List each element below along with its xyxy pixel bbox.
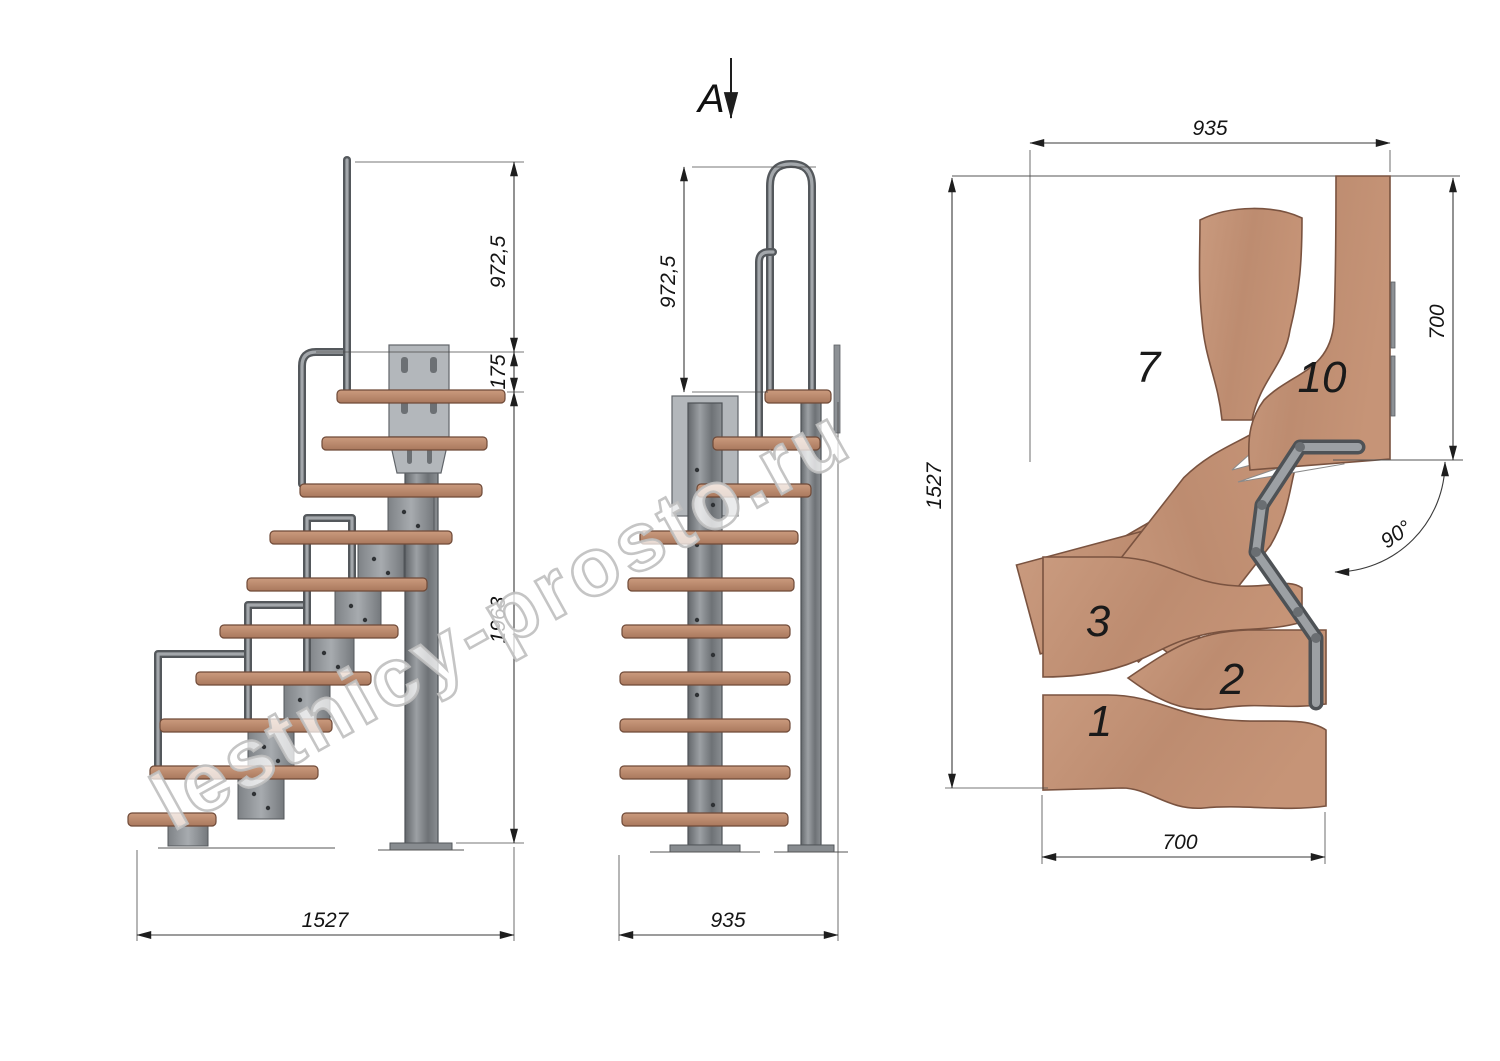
dim-plan-width: 935 xyxy=(1192,117,1227,140)
technical-drawing-staircase: 972,5 175 1963 1527 A xyxy=(0,0,1500,1061)
section-label: A xyxy=(696,77,725,121)
tread-number-1: 1 xyxy=(1088,697,1112,746)
tread xyxy=(620,719,790,732)
tread xyxy=(322,437,487,450)
tread xyxy=(620,672,790,685)
front-column-base xyxy=(788,845,834,852)
dim-handrail-height-front: 972,5 xyxy=(657,255,680,308)
stack-base-plate xyxy=(670,845,740,852)
section-marker: A xyxy=(696,58,731,121)
dim-turn-angle: 90° xyxy=(1377,516,1416,553)
tread xyxy=(270,531,452,544)
tread xyxy=(300,484,482,497)
tread-number-7: 7 xyxy=(1136,343,1162,392)
column-top-plate xyxy=(389,345,449,473)
tread xyxy=(620,766,790,779)
drawing-svg: 972,5 175 1963 1527 A xyxy=(0,0,1500,1061)
tread-number-3: 3 xyxy=(1086,597,1111,646)
plan-view: 1 2 3 7 10 935 1527 700 700 90° xyxy=(923,117,1463,864)
tread-1 xyxy=(1043,695,1326,808)
dim-landing-offset: 175 xyxy=(487,354,510,389)
dim-width-front: 935 xyxy=(710,909,745,932)
tread xyxy=(622,813,788,826)
tread xyxy=(220,625,398,638)
dim-plan-landing-depth: 700 xyxy=(1426,304,1449,339)
tread xyxy=(337,390,505,403)
turn-angle-arc xyxy=(1335,462,1445,572)
dim-plan-total-depth: 1527 xyxy=(923,461,946,509)
tread-number-10: 10 xyxy=(1298,353,1347,402)
dim-plan-bottom-width: 700 xyxy=(1162,831,1197,854)
column-base-plate xyxy=(390,843,452,850)
dim-handrail-height: 972,5 xyxy=(487,235,510,288)
wall-bracket xyxy=(1391,282,1395,348)
tread-number-2: 2 xyxy=(1219,655,1244,704)
tread xyxy=(622,625,790,638)
wall-bracket xyxy=(1391,356,1395,416)
dim-total-run: 1527 xyxy=(302,909,350,932)
tread xyxy=(247,578,427,591)
